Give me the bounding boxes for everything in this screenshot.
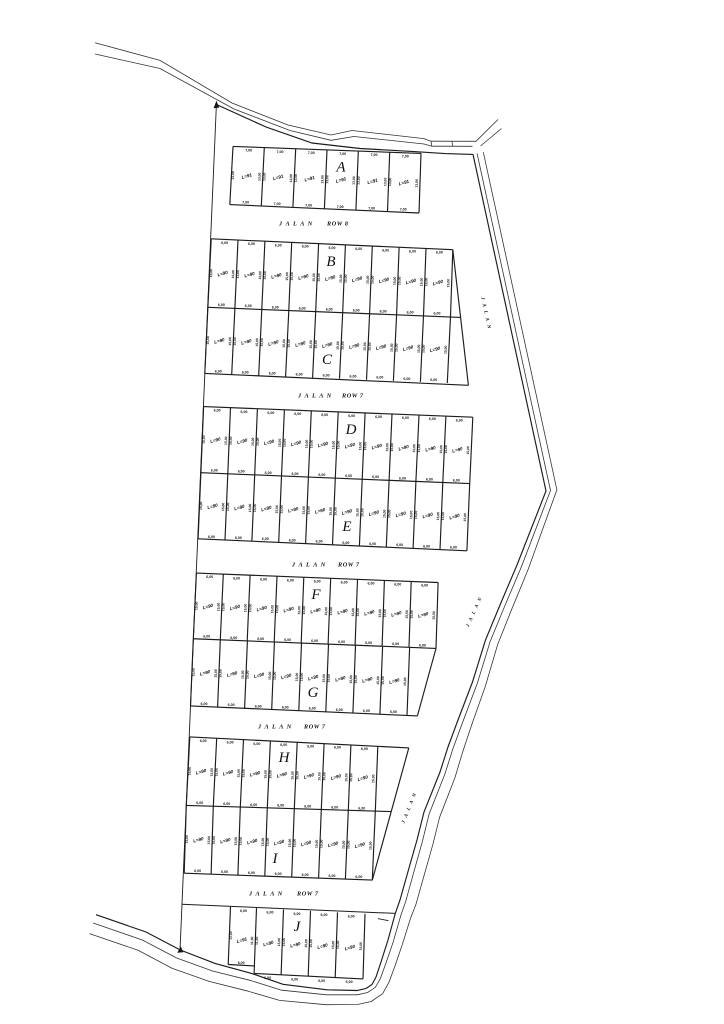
svg-text:13,00: 13,00 (257, 172, 261, 181)
svg-text:13,00: 13,00 (383, 177, 387, 186)
svg-text:6,00: 6,00 (372, 475, 379, 479)
svg-text:15,00: 15,00 (344, 773, 348, 782)
svg-text:ROW 7: ROW 7 (337, 562, 360, 569)
svg-text:15,00: 15,00 (309, 340, 313, 349)
svg-text:15,00: 15,00 (229, 436, 233, 445)
svg-text:6,00: 6,00 (307, 744, 314, 748)
svg-text:15,00: 15,00 (282, 938, 286, 947)
svg-text:15,00: 15,00 (414, 510, 418, 519)
svg-text:15,00: 15,00 (305, 440, 309, 449)
svg-text:JALAN: JALAN (278, 221, 316, 228)
svg-text:15,00: 15,00 (333, 507, 337, 516)
svg-text:6,00: 6,00 (423, 544, 430, 548)
svg-text:15,00: 15,00 (241, 670, 245, 679)
svg-text:6,00: 6,00 (409, 250, 416, 254)
svg-text:13,00: 13,00 (388, 177, 392, 186)
svg-text:6,00: 6,00 (235, 536, 242, 540)
svg-text:6,00: 6,00 (280, 743, 287, 747)
svg-text:6,00: 6,00 (329, 246, 336, 250)
svg-text:15,00: 15,00 (331, 940, 335, 949)
svg-text:15,00: 15,00 (397, 276, 401, 285)
svg-text:6,00: 6,00 (265, 471, 272, 475)
svg-text:15,00: 15,00 (209, 269, 213, 278)
svg-text:6,00: 6,00 (275, 243, 282, 247)
svg-text:15,00: 15,00 (312, 273, 316, 282)
svg-text:6,00: 6,00 (250, 803, 257, 807)
svg-text:15,00: 15,00 (188, 767, 192, 776)
svg-text:6,00: 6,00 (318, 473, 325, 477)
svg-text:15,00: 15,00 (239, 837, 243, 846)
svg-text:15,00: 15,00 (216, 603, 220, 612)
svg-text:6,00: 6,00 (426, 477, 433, 481)
svg-text:15,00: 15,00 (245, 670, 249, 679)
svg-text:15,00: 15,00 (228, 337, 232, 346)
svg-text:JALAN: JALAN (257, 724, 295, 731)
svg-text:6,00: 6,00 (399, 476, 406, 480)
svg-text:6,00: 6,00 (434, 312, 441, 316)
svg-text:15,00: 15,00 (358, 442, 362, 451)
svg-text:13,00: 13,00 (229, 931, 233, 940)
svg-text:15,00: 15,00 (315, 839, 319, 848)
svg-text:6,00: 6,00 (450, 546, 457, 550)
svg-text:6,00: 6,00 (248, 242, 255, 246)
svg-text:H: H (278, 750, 291, 766)
svg-text:6,00: 6,00 (302, 873, 309, 877)
svg-text:ROW 7: ROW 7 (303, 724, 326, 731)
svg-text:6,00: 6,00 (228, 703, 235, 707)
svg-text:15,00: 15,00 (314, 340, 318, 349)
svg-text:6,00: 6,00 (200, 739, 207, 743)
svg-text:6,00: 6,00 (363, 709, 370, 713)
svg-text:6,00: 6,00 (350, 375, 357, 379)
svg-text:6,00: 6,00 (456, 418, 463, 422)
svg-text:15,00: 15,00 (290, 771, 294, 780)
svg-text:15,00: 15,00 (317, 772, 321, 781)
svg-text:15,00: 15,00 (355, 508, 359, 517)
svg-text:6,00: 6,00 (287, 578, 294, 582)
svg-text:7,00: 7,00 (337, 205, 344, 209)
svg-text:15,00: 15,00 (363, 442, 367, 451)
svg-text:15,00: 15,00 (206, 336, 210, 345)
svg-text:7,00: 7,00 (368, 206, 375, 210)
svg-text:15,00: 15,00 (409, 510, 413, 519)
svg-text:6,00: 6,00 (323, 374, 330, 378)
svg-text:15,00: 15,00 (331, 441, 335, 450)
svg-text:7,00: 7,00 (305, 204, 312, 208)
svg-text:6,00: 6,00 (394, 583, 401, 587)
svg-text:15,00: 15,00 (282, 438, 286, 447)
svg-text:6,00: 6,00 (430, 378, 437, 382)
svg-text:15,00: 15,00 (191, 668, 195, 677)
svg-text:6,00: 6,00 (407, 310, 414, 314)
svg-text:15,00: 15,00 (231, 270, 235, 279)
svg-text:6,00: 6,00 (321, 413, 328, 417)
svg-text:6,00: 6,00 (329, 874, 336, 878)
svg-text:6,00: 6,00 (241, 410, 248, 414)
svg-text:13,00: 13,00 (289, 174, 293, 183)
svg-text:15,00: 15,00 (304, 939, 308, 948)
svg-text:15,00: 15,00 (221, 502, 225, 511)
svg-text:6,00: 6,00 (336, 708, 343, 712)
svg-text:15,00: 15,00 (336, 940, 340, 949)
svg-text:13,00: 13,00 (352, 176, 356, 185)
svg-text:15,00: 15,00 (329, 507, 333, 516)
svg-text:6,00: 6,00 (346, 980, 353, 984)
svg-text:15,00: 15,00 (329, 607, 333, 616)
svg-text:15,00: 15,00 (199, 501, 203, 510)
svg-text:6,00: 6,00 (375, 415, 382, 419)
svg-text:6,00: 6,00 (392, 642, 399, 646)
svg-text:15,00: 15,00 (288, 839, 292, 848)
svg-text:ROW 8: ROW 8 (326, 221, 349, 228)
svg-text:6,00: 6,00 (365, 641, 372, 645)
svg-text:6,00: 6,00 (277, 804, 284, 808)
svg-text:15,00: 15,00 (302, 606, 306, 615)
svg-text:15,00: 15,00 (210, 768, 214, 777)
svg-text:15,00: 15,00 (419, 278, 423, 287)
svg-text:15,00: 15,00 (405, 610, 409, 619)
svg-text:15,00: 15,00 (263, 770, 267, 779)
svg-text:15,00: 15,00 (378, 609, 382, 618)
svg-text:15,00: 15,00 (270, 605, 274, 614)
svg-text:15,00: 15,00 (354, 675, 358, 684)
svg-text:15,00: 15,00 (297, 606, 301, 615)
svg-text:7,00: 7,00 (371, 153, 378, 157)
svg-text:15,00: 15,00 (212, 836, 216, 845)
svg-text:D: D (345, 422, 357, 438)
svg-text:6,00: 6,00 (291, 978, 298, 982)
svg-text:6,00: 6,00 (240, 909, 247, 913)
svg-text:15,00: 15,00 (444, 345, 448, 354)
svg-text:15,00: 15,00 (417, 344, 421, 353)
svg-text:15,00: 15,00 (275, 505, 279, 514)
svg-text:15,00: 15,00 (368, 342, 372, 351)
svg-text:6,00: 6,00 (218, 303, 225, 307)
svg-text:15,00: 15,00 (243, 604, 247, 613)
svg-text:6,00: 6,00 (369, 542, 376, 546)
svg-text:15,00: 15,00 (214, 669, 218, 678)
svg-text:6,00: 6,00 (304, 805, 311, 809)
svg-text:15,00: 15,00 (360, 508, 364, 517)
svg-text:6,00: 6,00 (294, 912, 301, 916)
svg-text:15,00: 15,00 (256, 437, 260, 446)
svg-text:E: E (341, 519, 351, 535)
svg-text:15,00: 15,00 (194, 601, 198, 610)
svg-text:6,00: 6,00 (194, 869, 201, 873)
svg-text:15,00: 15,00 (412, 444, 416, 453)
svg-text:6,00: 6,00 (272, 305, 279, 309)
svg-text:15,00: 15,00 (233, 337, 237, 346)
svg-text:7,00: 7,00 (308, 151, 315, 155)
svg-text:15,00: 15,00 (319, 839, 323, 848)
svg-text:15,00: 15,00 (268, 770, 272, 779)
svg-text:6,00: 6,00 (299, 306, 306, 310)
svg-text:15,00: 15,00 (322, 772, 326, 781)
svg-text:15,00: 15,00 (277, 938, 281, 947)
svg-text:15,00: 15,00 (341, 341, 345, 350)
svg-text:6,00: 6,00 (309, 707, 316, 711)
svg-text:6,00: 6,00 (321, 913, 328, 917)
svg-text:15,00: 15,00 (344, 274, 348, 283)
svg-text:15,00: 15,00 (253, 504, 257, 513)
svg-text:15,00: 15,00 (366, 275, 370, 284)
svg-text:15,00: 15,00 (394, 343, 398, 352)
svg-text:15,00: 15,00 (346, 840, 350, 849)
svg-text:7,00: 7,00 (242, 201, 249, 205)
svg-text:6,00: 6,00 (245, 304, 252, 308)
svg-text:15,00: 15,00 (403, 677, 407, 686)
svg-text:15,00: 15,00 (387, 509, 391, 518)
svg-text:15,00: 15,00 (248, 604, 252, 613)
svg-text:7,00: 7,00 (400, 208, 407, 212)
svg-text:6,00: 6,00 (233, 576, 240, 580)
svg-text:6,00: 6,00 (396, 543, 403, 547)
svg-text:15,00: 15,00 (295, 673, 299, 682)
svg-text:6,00: 6,00 (355, 247, 362, 251)
svg-text:15,00: 15,00 (359, 942, 363, 951)
svg-text:15,00: 15,00 (466, 446, 470, 455)
svg-text:6,00: 6,00 (201, 702, 208, 706)
svg-text:15,00: 15,00 (309, 939, 313, 948)
svg-text:15,00: 15,00 (241, 769, 245, 778)
svg-text:15,00: 15,00 (285, 272, 289, 281)
svg-text:15,00: 15,00 (381, 676, 385, 685)
svg-text:6,00: 6,00 (348, 915, 355, 919)
svg-text:15,00: 15,00 (317, 273, 321, 282)
svg-text:6,00: 6,00 (453, 479, 460, 483)
svg-text:15,00: 15,00 (275, 605, 279, 614)
svg-text:6,00: 6,00 (380, 309, 387, 313)
svg-text:6,00: 6,00 (267, 411, 274, 415)
svg-text:F: F (310, 587, 321, 603)
svg-text:13,00: 13,00 (294, 174, 298, 183)
svg-text:6,00: 6,00 (338, 640, 345, 644)
svg-text:6,00: 6,00 (311, 639, 318, 643)
svg-text:6,00: 6,00 (342, 541, 349, 545)
svg-text:6,00: 6,00 (358, 806, 365, 810)
svg-text:15,00: 15,00 (436, 512, 440, 521)
svg-text:6,00: 6,00 (355, 875, 362, 879)
svg-text:15,00: 15,00 (327, 674, 331, 683)
svg-text:6,00: 6,00 (429, 417, 436, 421)
svg-text:15,00: 15,00 (383, 609, 387, 618)
svg-text:ROW 7: ROW 7 (296, 891, 319, 898)
svg-text:15,00: 15,00 (368, 841, 372, 850)
svg-text:7,00: 7,00 (402, 154, 409, 158)
svg-text:6,00: 6,00 (326, 307, 333, 311)
svg-text:6,00: 6,00 (361, 747, 368, 751)
svg-text:C: C (322, 352, 333, 368)
svg-text:15,00: 15,00 (287, 339, 291, 348)
svg-text:15,00: 15,00 (221, 603, 225, 612)
svg-text:15,00: 15,00 (251, 437, 255, 446)
svg-text:15,00: 15,00 (207, 836, 211, 845)
svg-text:15,00: 15,00 (441, 512, 445, 521)
svg-text:15,00: 15,00 (263, 271, 267, 280)
svg-text:6,00: 6,00 (289, 538, 296, 542)
svg-text:15,00: 15,00 (300, 673, 304, 682)
svg-text:15,00: 15,00 (336, 441, 340, 450)
svg-text:6,00: 6,00 (382, 248, 389, 252)
svg-text:6,00: 6,00 (227, 741, 234, 745)
svg-text:6,00: 6,00 (345, 474, 352, 478)
svg-text:15,00: 15,00 (444, 445, 448, 454)
svg-text:15,00: 15,00 (236, 270, 240, 279)
svg-text:6,00: 6,00 (318, 979, 325, 983)
svg-text:15,00: 15,00 (278, 438, 282, 447)
svg-text:15,00: 15,00 (292, 839, 296, 848)
svg-text:6,00: 6,00 (419, 643, 426, 647)
svg-text:6,00: 6,00 (402, 416, 409, 420)
svg-text:15,00: 15,00 (336, 341, 340, 350)
svg-text:A: A (335, 160, 346, 176)
svg-text:15,00: 15,00 (214, 768, 218, 777)
svg-text:15,00: 15,00 (439, 445, 443, 454)
svg-text:15,00: 15,00 (282, 339, 286, 348)
svg-text:6,00: 6,00 (403, 377, 410, 381)
svg-text:15,00: 15,00 (237, 769, 241, 778)
svg-text:6,00: 6,00 (284, 638, 291, 642)
svg-text:6,00: 6,00 (275, 872, 282, 876)
svg-text:6,00: 6,00 (260, 577, 267, 581)
svg-text:15,00: 15,00 (356, 608, 360, 617)
svg-text:7,00: 7,00 (274, 202, 281, 206)
svg-text:6,00: 6,00 (223, 802, 230, 806)
svg-text:6,00: 6,00 (221, 870, 228, 874)
svg-text:15,00: 15,00 (226, 502, 230, 511)
svg-text:6,00: 6,00 (341, 580, 348, 584)
svg-text:13,00: 13,00 (415, 179, 419, 188)
svg-text:15,00: 15,00 (393, 276, 397, 285)
svg-text:6,00: 6,00 (248, 871, 255, 875)
svg-text:13,00: 13,00 (320, 175, 324, 184)
svg-text:15,00: 15,00 (446, 279, 450, 288)
svg-text:13,00: 13,00 (325, 175, 329, 184)
svg-text:6,00: 6,00 (390, 710, 397, 714)
svg-text:6,00: 6,00 (196, 801, 203, 805)
svg-text:6,00: 6,00 (314, 579, 321, 583)
svg-text:7,00: 7,00 (245, 149, 252, 153)
svg-text:6,00: 6,00 (221, 241, 228, 245)
svg-text:15,00: 15,00 (268, 671, 272, 680)
svg-text:6,00: 6,00 (262, 537, 269, 541)
svg-text:15,00: 15,00 (351, 608, 355, 617)
svg-text:15,00: 15,00 (234, 837, 238, 846)
svg-text:6,00: 6,00 (436, 251, 443, 255)
svg-text:15,00: 15,00 (417, 444, 421, 453)
svg-text:15,00: 15,00 (432, 611, 436, 620)
svg-text:6,00: 6,00 (292, 472, 299, 476)
svg-text:6,00: 6,00 (255, 704, 262, 708)
svg-text:15,00: 15,00 (339, 274, 343, 283)
svg-text:15,00: 15,00 (390, 343, 394, 352)
svg-text:15,00: 15,00 (421, 344, 425, 353)
svg-text:15,00: 15,00 (376, 676, 380, 685)
svg-text:6,00: 6,00 (316, 540, 323, 544)
svg-text:15,00: 15,00 (260, 338, 264, 347)
svg-text:6,00: 6,00 (211, 469, 218, 473)
svg-text:15,00: 15,00 (280, 505, 284, 514)
svg-text:15,00: 15,00 (309, 440, 313, 449)
svg-text:15,00: 15,00 (382, 509, 386, 518)
svg-text:15,00: 15,00 (390, 443, 394, 452)
svg-text:15,00: 15,00 (342, 840, 346, 849)
svg-text:15,00: 15,00 (273, 671, 277, 680)
svg-text:6,00: 6,00 (421, 584, 428, 588)
svg-text:6,00: 6,00 (238, 961, 245, 965)
svg-text:15,00: 15,00 (224, 436, 228, 445)
svg-text:11,50: 11,50 (255, 936, 259, 945)
svg-text:JALAN: JALAN (297, 393, 335, 400)
svg-text:6,00: 6,00 (203, 635, 210, 639)
svg-text:13,00: 13,00 (262, 172, 266, 181)
svg-text:6,00: 6,00 (238, 470, 245, 474)
svg-text:6,00: 6,00 (264, 976, 271, 980)
svg-text:6,00: 6,00 (348, 414, 355, 418)
svg-text:15,00: 15,00 (410, 610, 414, 619)
svg-text:6,00: 6,00 (368, 582, 375, 586)
svg-text:6,00: 6,00 (267, 910, 274, 914)
svg-text:6,00: 6,00 (206, 575, 213, 579)
svg-text:15,00: 15,00 (302, 506, 306, 515)
svg-text:15,00: 15,00 (385, 443, 389, 452)
svg-text:7,00: 7,00 (339, 152, 346, 156)
svg-text:6,00: 6,00 (282, 706, 289, 710)
svg-text:B: B (326, 254, 335, 270)
svg-text:11,50: 11,50 (250, 936, 254, 945)
svg-text:13,00: 13,00 (231, 171, 235, 180)
svg-text:15,00: 15,00 (324, 607, 328, 616)
svg-text:15,00: 15,00 (349, 773, 353, 782)
svg-text:6,00: 6,00 (353, 308, 360, 312)
svg-text:15,00: 15,00 (370, 275, 374, 284)
svg-text:6,00: 6,00 (376, 376, 383, 380)
svg-text:15,00: 15,00 (349, 675, 353, 684)
svg-text:15,00: 15,00 (248, 504, 252, 513)
svg-text:6,00: 6,00 (331, 805, 338, 809)
svg-text:15,00: 15,00 (255, 338, 259, 347)
svg-text:ROW 7: ROW 7 (341, 393, 364, 400)
svg-text:6,00: 6,00 (214, 409, 221, 413)
svg-text:6,00: 6,00 (294, 412, 301, 416)
svg-text:15,00: 15,00 (424, 278, 428, 287)
svg-text:15,00: 15,00 (363, 342, 367, 351)
svg-text:6,00: 6,00 (208, 535, 215, 539)
svg-text:15,00: 15,00 (306, 506, 310, 515)
svg-text:15,00: 15,00 (185, 835, 189, 844)
svg-text:15,00: 15,00 (202, 435, 206, 444)
svg-text:15,00: 15,00 (218, 669, 222, 678)
svg-text:6,00: 6,00 (230, 636, 237, 640)
svg-text:13,00: 13,00 (357, 176, 361, 185)
svg-text:6,00: 6,00 (257, 637, 264, 641)
svg-text:6,00: 6,00 (269, 372, 276, 376)
svg-text:15,00: 15,00 (463, 513, 467, 522)
svg-text:JALAN: JALAN (291, 562, 329, 569)
svg-text:G: G (308, 685, 319, 701)
svg-text:15,00: 15,00 (290, 272, 294, 281)
svg-text:6,00: 6,00 (242, 370, 249, 374)
svg-text:6,00: 6,00 (296, 373, 303, 377)
svg-text:15,00: 15,00 (295, 771, 299, 780)
svg-text:15,00: 15,00 (266, 838, 270, 847)
svg-text:7,00: 7,00 (277, 150, 284, 154)
svg-text:15,00: 15,00 (258, 271, 262, 280)
svg-text:15,00: 15,00 (371, 774, 375, 783)
svg-text:I: I (272, 851, 279, 867)
svg-text:JALAN: JALAN (248, 891, 286, 898)
svg-text:6,00: 6,00 (302, 245, 309, 249)
